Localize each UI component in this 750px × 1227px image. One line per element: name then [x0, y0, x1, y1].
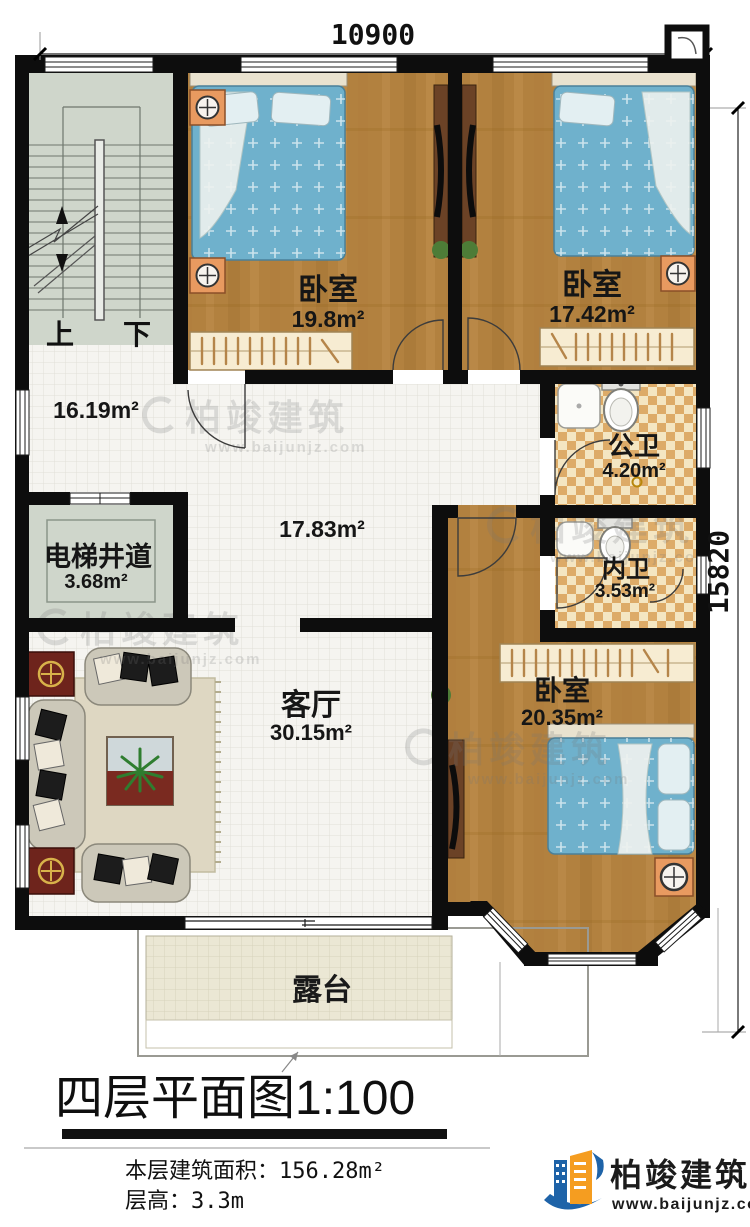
toilet [602, 378, 640, 431]
floor-height-text: 层高：3.3m [125, 1188, 244, 1214]
corner-table [28, 848, 74, 894]
floor-area-text: 本层建筑面积：156.28m² [125, 1158, 385, 1184]
window [16, 697, 29, 760]
window [16, 825, 29, 888]
living-room-furniture [28, 648, 221, 902]
brand-name: 柏竣建筑 [610, 1157, 750, 1193]
elevator-door [70, 493, 130, 504]
floor-plan-drawing: 露台 上 下 [0, 0, 750, 1227]
title-block: 四层平面图1:100 本层建筑面积：156.28m² 层高：3.3m [24, 1072, 490, 1214]
bedroom1-name: 卧室 [298, 273, 358, 307]
elevator-shaft-name: 电梯井道 [44, 541, 152, 572]
bay-window [548, 954, 636, 965]
plant-icon [432, 241, 450, 259]
plan-title: 四层平面图1:100 [55, 1072, 415, 1125]
bedroom2-name: 卧室 [562, 268, 622, 302]
plant-icon [460, 241, 478, 259]
bedside-table [661, 256, 695, 291]
stairs-up-label: 上 [46, 319, 74, 350]
svg-text:www.baijunjz.com: www.baijunjz.com [467, 771, 629, 788]
window [697, 408, 710, 468]
bedside-table [190, 90, 225, 125]
window [241, 57, 397, 72]
dimension-top: 10900 [34, 18, 712, 60]
svg-text:柏竣建筑: 柏竣建筑 [448, 729, 612, 770]
inner-bathroom-area: 3.53m² [595, 581, 655, 602]
public-bathroom-name: 公卫 [608, 431, 660, 461]
brand-logo-icon [544, 1150, 604, 1210]
bedside-table [190, 258, 225, 293]
brand-website: www.baijunjz.com [611, 1196, 750, 1213]
wardrobe [190, 332, 352, 370]
terrace-label: 露台 [292, 973, 352, 1007]
elevator-shaft-area: 3.68m² [64, 571, 128, 593]
title-divider [24, 1147, 490, 1149]
bedside-table [655, 858, 693, 896]
window [45, 57, 153, 72]
window [16, 390, 29, 455]
window [493, 57, 648, 72]
svg-text:柏竣建筑: 柏竣建筑 [185, 397, 349, 438]
coffee-table [107, 737, 173, 805]
hall-area: 17.83m² [279, 516, 365, 542]
wardrobe [540, 328, 694, 366]
stair-hall-area: 16.19m² [53, 397, 139, 423]
inner-bathroom-name: 内卫 [602, 556, 650, 583]
brand-logo: 柏竣建筑 www.baijunjz.com [544, 1150, 750, 1213]
bedroom1-area: 19.8m² [292, 306, 365, 332]
svg-text:www.baijunjz.com: www.baijunjz.com [204, 439, 366, 456]
stairs-down-label: 下 [123, 319, 151, 350]
wardrobe [500, 644, 694, 682]
title-underline [62, 1129, 447, 1139]
dimension-right-value: 15820 [702, 530, 735, 614]
bedroom2-area: 17.42m² [549, 301, 635, 327]
svg-text:www.baijunjz.com: www.baijunjz.com [99, 651, 261, 668]
living-room-area: 30.15m² [270, 720, 352, 745]
bedroom3-area: 20.35m² [521, 705, 603, 730]
roof-corner-detail [668, 28, 706, 62]
dimension-top-value: 10900 [331, 18, 415, 51]
sliding-door [185, 917, 432, 929]
bedroom3-corridor-floor [448, 505, 540, 632]
public-bathroom-area: 4.20m² [602, 460, 666, 482]
living-room-name: 客厅 [281, 688, 341, 722]
corner-table [28, 652, 74, 696]
bedroom3-name: 卧室 [534, 674, 590, 706]
floor-plan-page: 露台 上 下 [0, 0, 750, 1227]
